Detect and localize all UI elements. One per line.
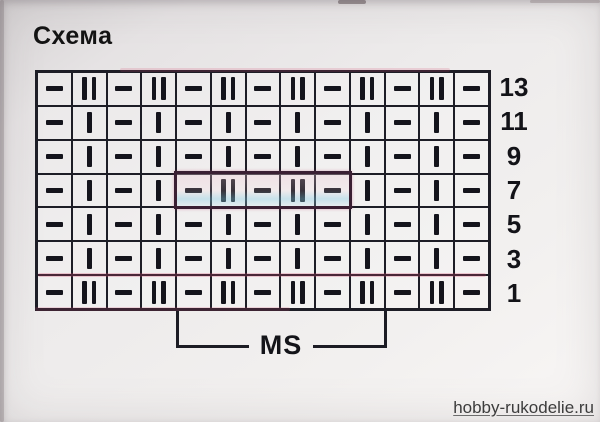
purl-dash-symbol bbox=[185, 154, 202, 159]
chart-cell bbox=[351, 175, 386, 207]
knit-bar-symbol bbox=[87, 214, 92, 235]
repeat-bracket-left-line bbox=[176, 345, 249, 348]
chart-cell bbox=[386, 107, 421, 139]
chart-cell bbox=[386, 141, 421, 173]
knit-bar-symbol bbox=[87, 146, 92, 167]
knit-bar-symbol bbox=[291, 179, 296, 202]
chart-cell bbox=[420, 175, 455, 207]
chart-cell bbox=[386, 175, 421, 207]
knit-bar-symbol bbox=[360, 281, 365, 304]
chart-cell bbox=[177, 175, 212, 207]
chart-cell bbox=[38, 73, 73, 105]
chart-cell bbox=[108, 242, 143, 274]
knit-bar-symbol bbox=[360, 77, 365, 100]
purl-dash-symbol bbox=[394, 86, 411, 91]
purl-dash-symbol bbox=[46, 154, 63, 159]
repeat-bracket-left-line bbox=[176, 311, 179, 347]
knit-bar-symbol bbox=[87, 248, 92, 269]
purl-dash-symbol bbox=[463, 256, 480, 261]
chart-cell bbox=[316, 73, 351, 105]
row-numbers: 131197531 bbox=[492, 70, 536, 311]
chart-row bbox=[38, 73, 488, 107]
chart-cell bbox=[281, 276, 316, 308]
chart-cell bbox=[386, 276, 421, 308]
chart-cell bbox=[247, 73, 282, 105]
knit-bar-symbol bbox=[430, 281, 435, 304]
purl-dash-symbol bbox=[185, 290, 202, 295]
knit-bar-symbol bbox=[365, 112, 370, 133]
chart-cell bbox=[455, 242, 488, 274]
knit-bar-symbol bbox=[439, 281, 444, 304]
chart-cell bbox=[38, 141, 73, 173]
chart-cell bbox=[351, 208, 386, 240]
chart-cell bbox=[73, 276, 108, 308]
purl-dash-symbol bbox=[463, 222, 480, 227]
chart-cell bbox=[420, 141, 455, 173]
purl-dash-symbol bbox=[463, 290, 480, 295]
chart-cell bbox=[281, 242, 316, 274]
chart-cell bbox=[247, 208, 282, 240]
purl-dash-symbol bbox=[394, 154, 411, 159]
chart-cell bbox=[455, 276, 488, 308]
repeat-bracket-right-line bbox=[313, 345, 387, 348]
chart-cell bbox=[142, 242, 177, 274]
chart-cell bbox=[455, 107, 488, 139]
chart-cell bbox=[212, 107, 247, 139]
chart-cell bbox=[177, 208, 212, 240]
knit-bar-symbol bbox=[156, 214, 161, 235]
chart-cell bbox=[212, 73, 247, 105]
chart-cell bbox=[351, 107, 386, 139]
purl-dash-symbol bbox=[394, 188, 411, 193]
knit-bar-symbol bbox=[365, 180, 370, 201]
chart-cell bbox=[247, 141, 282, 173]
scanned-knitting-chart-page: Схема 131197531 MS hobby-rukodelie.ru bbox=[0, 0, 600, 422]
knit-bar-symbol bbox=[156, 180, 161, 201]
purl-dash-symbol bbox=[185, 120, 202, 125]
purl-dash-symbol bbox=[185, 86, 202, 91]
purl-dash-symbol bbox=[254, 154, 271, 159]
knit-bar-symbol bbox=[221, 77, 226, 100]
purl-dash-symbol bbox=[463, 154, 480, 159]
purl-dash-symbol bbox=[254, 256, 271, 261]
chart-cell bbox=[351, 141, 386, 173]
purl-dash-symbol bbox=[463, 188, 480, 193]
chart-cell bbox=[108, 175, 143, 207]
chart-cell bbox=[351, 242, 386, 274]
repeat-bracket-right-line bbox=[384, 311, 387, 347]
knit-bar-symbol bbox=[226, 214, 231, 235]
purl-dash-symbol bbox=[115, 188, 132, 193]
row-number: 13 bbox=[492, 70, 536, 104]
scan-artifact bbox=[338, 0, 366, 4]
knit-bar-symbol bbox=[231, 281, 236, 304]
purl-dash-symbol bbox=[324, 290, 341, 295]
chart-cell bbox=[177, 276, 212, 308]
chart-cell bbox=[142, 73, 177, 105]
knit-bar-symbol bbox=[156, 112, 161, 133]
chart-cell bbox=[281, 175, 316, 207]
chart-cell bbox=[316, 107, 351, 139]
chart-cell bbox=[212, 208, 247, 240]
chart-cell bbox=[351, 73, 386, 105]
knit-bar-symbol bbox=[152, 77, 157, 100]
purl-dash-symbol bbox=[46, 222, 63, 227]
scan-artifact bbox=[0, 0, 4, 422]
chart-cell bbox=[142, 107, 177, 139]
knit-bar-symbol bbox=[291, 77, 296, 100]
knit-bar-symbol bbox=[291, 281, 296, 304]
purl-dash-symbol bbox=[463, 86, 480, 91]
chart-cell bbox=[108, 141, 143, 173]
purl-dash-symbol bbox=[46, 120, 63, 125]
knit-bar-symbol bbox=[434, 214, 439, 235]
chart-cell bbox=[386, 242, 421, 274]
chart-cell bbox=[73, 175, 108, 207]
page-title: Схема bbox=[33, 22, 112, 51]
chart-cell bbox=[455, 73, 488, 105]
purl-dash-symbol bbox=[324, 188, 341, 193]
purl-dash-symbol bbox=[254, 222, 271, 227]
chart-cell bbox=[38, 107, 73, 139]
purl-dash-symbol bbox=[46, 188, 63, 193]
purl-dash-symbol bbox=[185, 188, 202, 193]
chart-cell bbox=[38, 175, 73, 207]
knit-bar-symbol bbox=[87, 180, 92, 201]
knit-bar-symbol bbox=[226, 146, 231, 167]
knit-bar-symbol bbox=[434, 180, 439, 201]
knit-bar-symbol bbox=[439, 77, 444, 100]
row-number: 9 bbox=[492, 139, 536, 173]
chart-cell bbox=[108, 208, 143, 240]
knitting-chart-grid bbox=[35, 70, 491, 311]
knit-bar-symbol bbox=[295, 146, 300, 167]
chart-cell bbox=[420, 73, 455, 105]
purl-dash-symbol bbox=[394, 290, 411, 295]
knit-bar-symbol bbox=[156, 248, 161, 269]
chart-cell bbox=[316, 276, 351, 308]
knit-bar-symbol bbox=[226, 248, 231, 269]
knit-bar-symbol bbox=[82, 281, 87, 304]
purl-dash-symbol bbox=[115, 120, 132, 125]
knit-bar-symbol bbox=[231, 77, 236, 100]
purl-dash-symbol bbox=[46, 86, 63, 91]
chart-cell bbox=[38, 208, 73, 240]
chart-cell bbox=[38, 276, 73, 308]
knit-bar-symbol bbox=[434, 146, 439, 167]
repeat-label: MS bbox=[247, 330, 315, 361]
row-number: 7 bbox=[492, 173, 536, 207]
purl-dash-symbol bbox=[46, 290, 63, 295]
chart-cell bbox=[108, 276, 143, 308]
chart-cell bbox=[73, 73, 108, 105]
chart-row bbox=[38, 208, 488, 242]
chart-row bbox=[38, 107, 488, 141]
knit-bar-symbol bbox=[295, 112, 300, 133]
purl-dash-symbol bbox=[115, 154, 132, 159]
chart-cell bbox=[420, 107, 455, 139]
chart-row bbox=[38, 141, 488, 175]
chart-cell bbox=[177, 242, 212, 274]
knit-bar-symbol bbox=[365, 146, 370, 167]
knit-bar-symbol bbox=[430, 77, 435, 100]
chart-cell bbox=[455, 175, 488, 207]
purl-dash-symbol bbox=[254, 188, 271, 193]
knit-bar-symbol bbox=[221, 179, 226, 202]
watermark-text: hobby-rukodelie.ru bbox=[453, 398, 594, 418]
chart-cell bbox=[212, 141, 247, 173]
chart-cell bbox=[386, 73, 421, 105]
purl-dash-symbol bbox=[115, 86, 132, 91]
purl-dash-symbol bbox=[324, 120, 341, 125]
chart-cell bbox=[38, 242, 73, 274]
scan-artifact bbox=[530, 0, 600, 3]
chart-cell bbox=[73, 107, 108, 139]
knit-bar-symbol bbox=[365, 248, 370, 269]
chart-cell bbox=[281, 208, 316, 240]
chart-cell bbox=[281, 107, 316, 139]
knit-bar-symbol bbox=[221, 281, 226, 304]
purl-dash-symbol bbox=[254, 290, 271, 295]
chart-cell bbox=[142, 276, 177, 308]
chart-cell bbox=[177, 107, 212, 139]
row-number: 1 bbox=[492, 277, 536, 311]
purl-dash-symbol bbox=[115, 256, 132, 261]
chart-cell bbox=[316, 141, 351, 173]
chart-cell bbox=[316, 242, 351, 274]
purl-dash-symbol bbox=[254, 120, 271, 125]
chart-cell bbox=[108, 73, 143, 105]
knit-bar-symbol bbox=[82, 77, 87, 100]
knit-bar-symbol bbox=[295, 248, 300, 269]
chart-row bbox=[38, 242, 488, 276]
purl-dash-symbol bbox=[324, 86, 341, 91]
knit-bar-symbol bbox=[152, 281, 157, 304]
purl-dash-symbol bbox=[185, 222, 202, 227]
knit-bar-symbol bbox=[300, 179, 305, 202]
chart-cell bbox=[73, 242, 108, 274]
chart-cell bbox=[142, 175, 177, 207]
chart-cell bbox=[142, 208, 177, 240]
knit-bar-symbol bbox=[226, 112, 231, 133]
purl-dash-symbol bbox=[394, 256, 411, 261]
knit-bar-symbol bbox=[231, 179, 236, 202]
chart-cell bbox=[177, 73, 212, 105]
knit-bar-symbol bbox=[370, 77, 375, 100]
chart-cell bbox=[420, 242, 455, 274]
purl-dash-symbol bbox=[115, 290, 132, 295]
row-number: 11 bbox=[492, 104, 536, 138]
knit-bar-symbol bbox=[434, 112, 439, 133]
purl-dash-symbol bbox=[185, 256, 202, 261]
row-number: 3 bbox=[492, 242, 536, 276]
knit-bar-symbol bbox=[295, 214, 300, 235]
knit-bar-symbol bbox=[87, 112, 92, 133]
knit-bar-symbol bbox=[161, 281, 166, 304]
chart-cell bbox=[142, 141, 177, 173]
knit-bar-symbol bbox=[92, 281, 97, 304]
chart-cell bbox=[455, 141, 488, 173]
chart-cell bbox=[281, 141, 316, 173]
row-number: 5 bbox=[492, 208, 536, 242]
knit-bar-symbol bbox=[300, 77, 305, 100]
chart-row bbox=[38, 175, 488, 209]
purl-dash-symbol bbox=[324, 154, 341, 159]
chart-cell bbox=[351, 276, 386, 308]
knit-bar-symbol bbox=[156, 146, 161, 167]
purl-dash-symbol bbox=[46, 256, 63, 261]
chart-cell bbox=[247, 276, 282, 308]
knit-bar-symbol bbox=[370, 281, 375, 304]
purl-dash-symbol bbox=[394, 222, 411, 227]
chart-cell bbox=[247, 242, 282, 274]
purl-dash-symbol bbox=[324, 222, 341, 227]
purl-dash-symbol bbox=[324, 256, 341, 261]
chart-cell bbox=[420, 208, 455, 240]
chart-cell bbox=[212, 175, 247, 207]
chart-cell bbox=[316, 208, 351, 240]
knit-bar-symbol bbox=[161, 77, 166, 100]
chart-cell bbox=[281, 73, 316, 105]
chart-cell bbox=[420, 276, 455, 308]
chart-cell bbox=[177, 141, 212, 173]
chart-cell bbox=[455, 208, 488, 240]
knit-bar-symbol bbox=[300, 281, 305, 304]
chart-cell bbox=[247, 107, 282, 139]
chart-cell bbox=[108, 107, 143, 139]
knit-bar-symbol bbox=[92, 77, 97, 100]
chart-row bbox=[38, 276, 488, 308]
purl-dash-symbol bbox=[463, 120, 480, 125]
purl-dash-symbol bbox=[254, 86, 271, 91]
chart-cell bbox=[212, 242, 247, 274]
chart-cell bbox=[386, 208, 421, 240]
chart-cell bbox=[73, 208, 108, 240]
knit-bar-symbol bbox=[434, 248, 439, 269]
knit-bar-symbol bbox=[365, 214, 370, 235]
chart-cell bbox=[73, 141, 108, 173]
chart-cell bbox=[247, 175, 282, 207]
purl-dash-symbol bbox=[115, 222, 132, 227]
chart-cell bbox=[316, 175, 351, 207]
chart-cell bbox=[212, 276, 247, 308]
purl-dash-symbol bbox=[394, 120, 411, 125]
